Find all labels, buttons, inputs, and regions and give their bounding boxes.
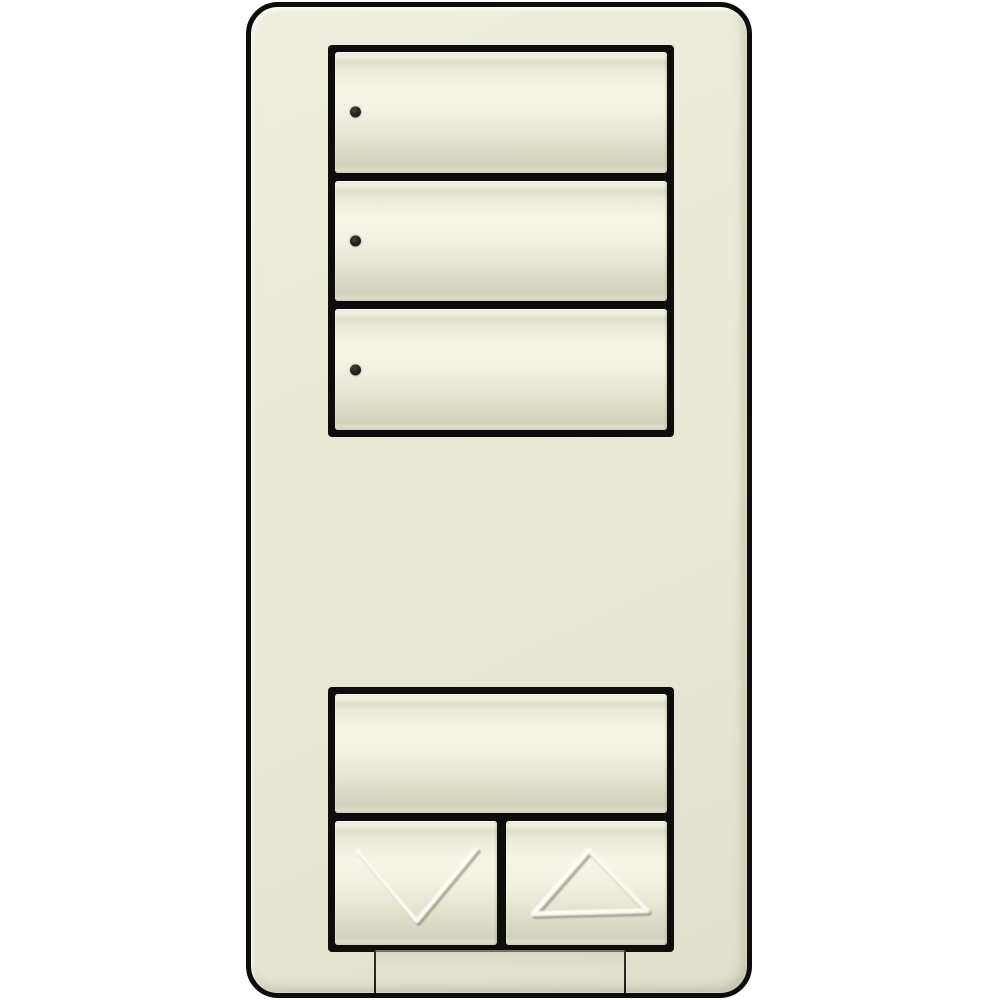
- triangle-up-icon: [506, 821, 668, 945]
- raise-lower-row: [335, 821, 667, 945]
- keypad-button-3[interactable]: [335, 309, 667, 430]
- product-image-canvas: [0, 0, 1000, 1000]
- keypad-button-2[interactable]: [335, 181, 667, 302]
- keypad-large-button[interactable]: [335, 694, 667, 813]
- lower-button[interactable]: [335, 821, 497, 945]
- top-button-opening: [328, 45, 674, 437]
- bottom-button-opening: [328, 687, 674, 952]
- raise-button[interactable]: [506, 821, 668, 945]
- keypad-button-1[interactable]: [335, 52, 667, 173]
- led-indicator-icon: [350, 107, 361, 118]
- keypad-faceplate: [246, 2, 752, 998]
- chevron-down-icon: [335, 821, 497, 945]
- tab-seam-right: [624, 950, 626, 993]
- wallplate-bottom-tab[interactable]: [376, 950, 624, 993]
- led-indicator-icon: [350, 236, 361, 247]
- led-indicator-icon: [350, 364, 361, 375]
- tab-seam-left: [374, 950, 376, 993]
